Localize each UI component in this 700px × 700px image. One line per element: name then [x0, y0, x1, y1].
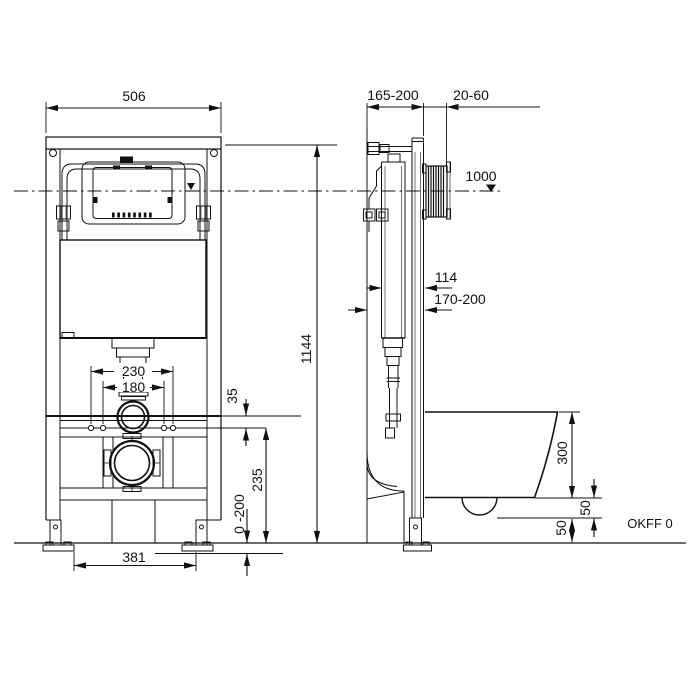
toilet-bowl [425, 412, 558, 515]
dim-frame-width-text: 506 [122, 88, 146, 104]
bowl-outlet [462, 498, 497, 516]
level-mark-icon [187, 183, 195, 190]
dim-rail-to-bolts-text: 35 [224, 388, 240, 404]
cistern-side [364, 154, 406, 338]
frame-legs [43, 520, 213, 551]
dim-frame-height-text: 1144 [298, 334, 314, 364]
dim-bowl-clearance-text: 50 [577, 500, 593, 516]
dim-foot-span-text: 381 [122, 549, 146, 565]
screw-hole [50, 150, 57, 157]
installation-frame-drawing: 506 1144 165-200 20-60 1000 114 [0, 0, 700, 700]
drain-elbow [367, 452, 404, 543]
front-view [43, 137, 221, 551]
dim-front-depth-text: 170-200 [434, 291, 486, 307]
dim-flush-pipe-span-text: 230 [122, 363, 146, 379]
dim-frame-width: 506 [46, 88, 221, 133]
screw-hole [211, 150, 218, 157]
dim-depth-adjust-text: 165-200 [367, 87, 419, 103]
protection-box [423, 162, 451, 219]
cistern-front [60, 240, 206, 338]
dim-leg-extension-text: 0 -200 [231, 494, 247, 534]
dim-frame-height: 1144 [225, 145, 337, 543]
flush-pipe-side [383, 338, 403, 438]
dim-bowl-height: 300 [535, 412, 603, 498]
dim-actuation-height-text: 1000 [465, 168, 496, 184]
frame-leg-side [404, 518, 432, 551]
dim-front-depth: 170-200 [348, 291, 486, 310]
dim-bowl-clearance: 50 [497, 479, 602, 537]
dim-wall-cover: 20-60 [424, 87, 541, 163]
flush-button-mark [120, 157, 133, 164]
dim-wall-cover-text: 20-60 [453, 87, 489, 103]
dim-bolt-height: 235 [249, 428, 266, 543]
wall-bracket [367, 143, 412, 155]
dim-actuation-height: 1000 [465, 168, 496, 192]
dim-bowl-height-text: 300 [554, 441, 570, 465]
dim-foot-span: 381 [74, 549, 196, 571]
flush-tube [62, 164, 205, 240]
technical-drawing-page: 506 1144 165-200 20-60 1000 114 [0, 0, 700, 700]
inspection-box [82, 157, 195, 225]
dim-bolt-height-text: 235 [249, 468, 265, 492]
dim-depth-adjust: 165-200 [367, 87, 424, 136]
floor-datum: OKFF 0 [627, 516, 674, 543]
frame-profile-side [412, 138, 424, 518]
dim-cistern-depth-text: 114 [435, 269, 458, 285]
dim-fixing-bolt-span-text: 180 [122, 379, 146, 395]
dimensions: 506 1144 165-200 20-60 1000 114 [46, 87, 674, 576]
dim-outlet-clearance-text: 50 [553, 520, 569, 536]
dim-leg-extension: 0 -200 [231, 494, 247, 576]
floor-datum-text: OKFF 0 [627, 516, 673, 531]
dim-outlet-clearance: 50 [553, 519, 572, 542]
datum-triangle-icon [658, 531, 674, 543]
